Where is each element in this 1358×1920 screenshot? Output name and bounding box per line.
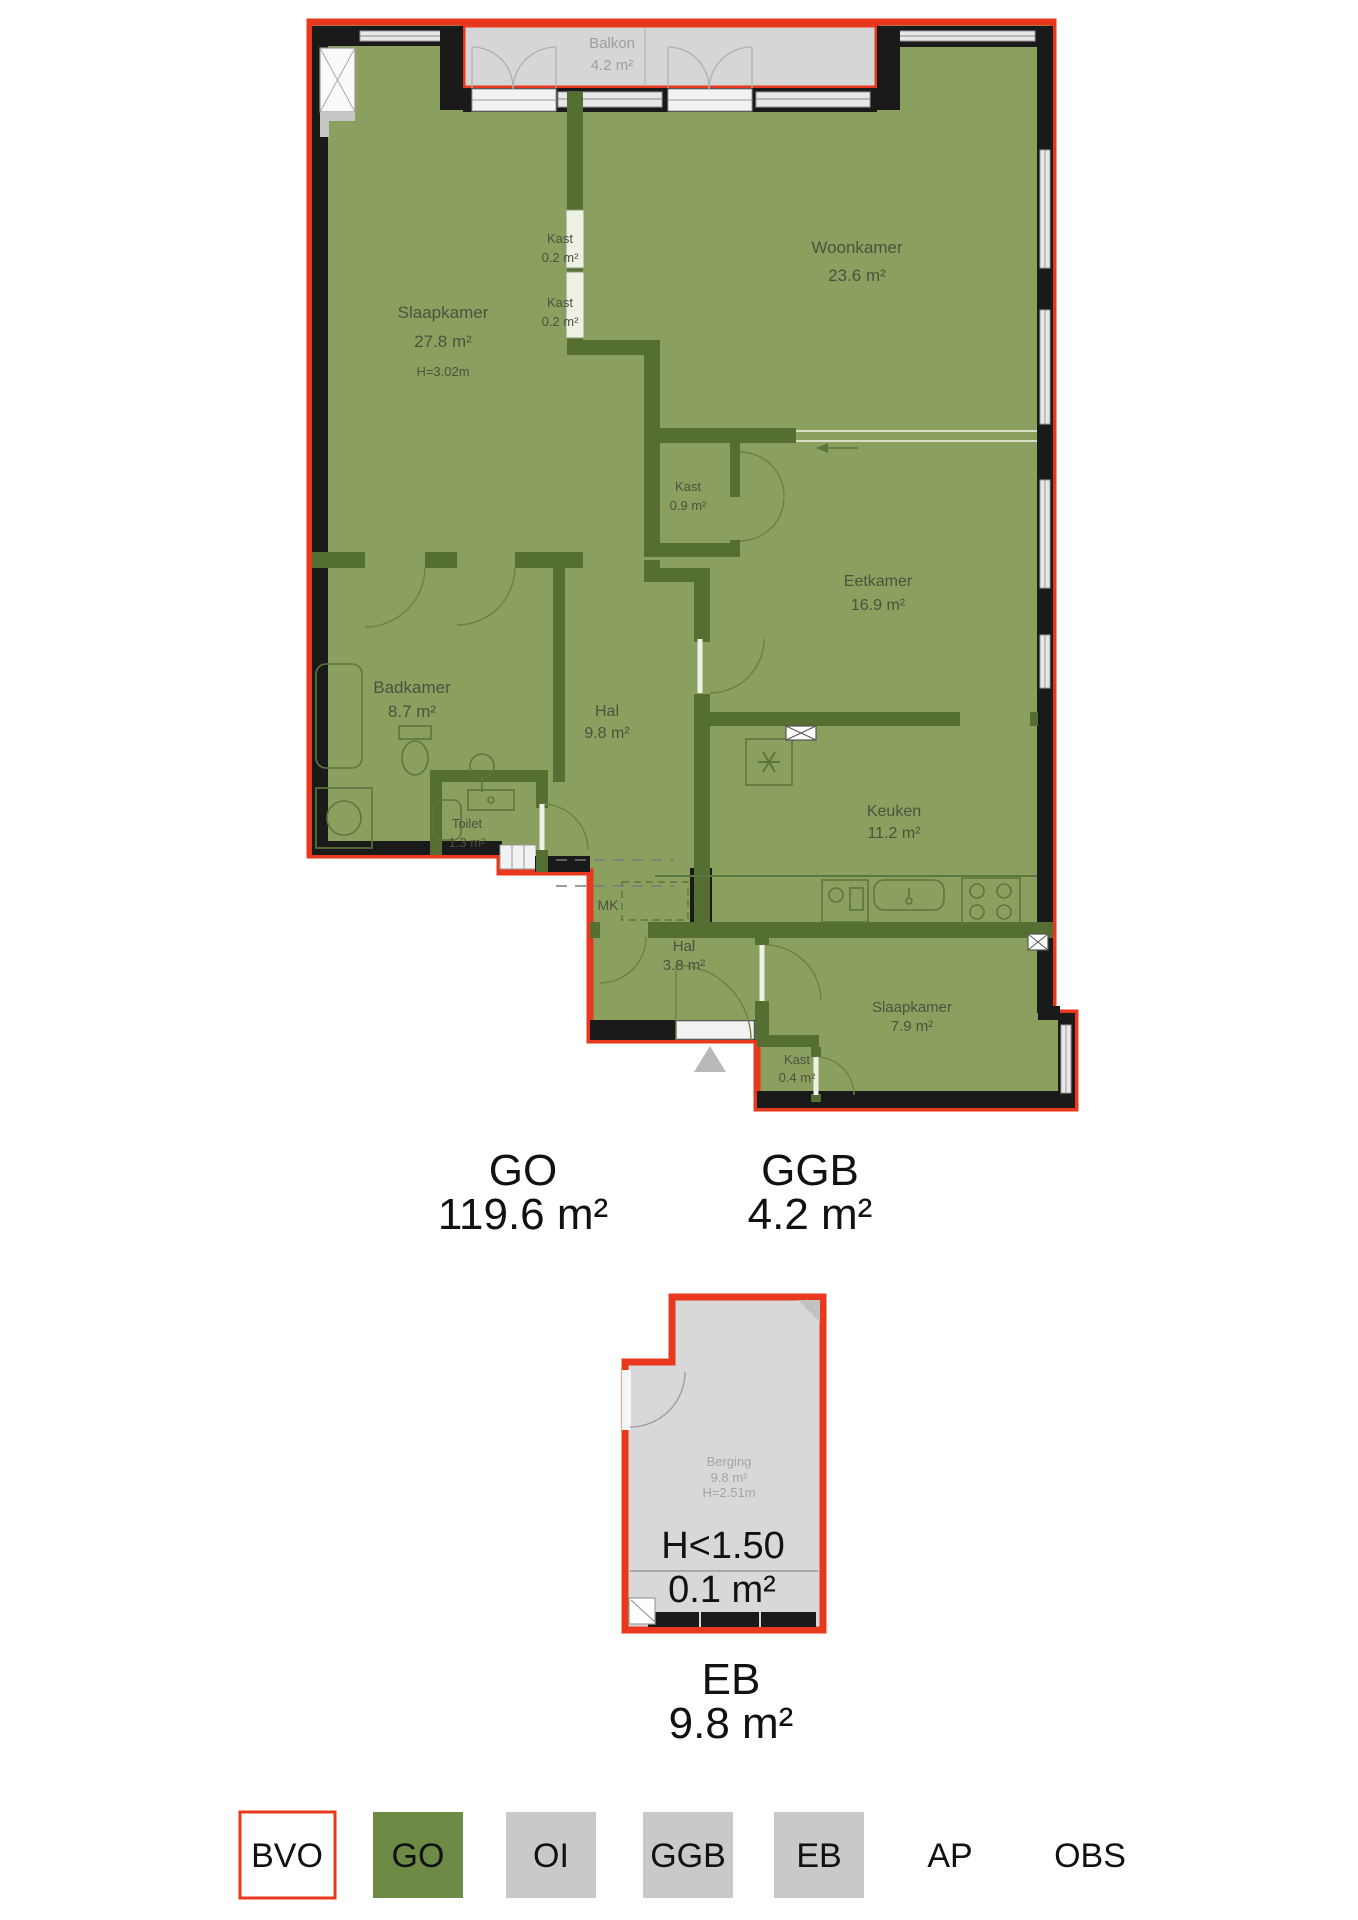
badkamer-label: Badkamer — [373, 678, 451, 697]
eb-summary-label: EB — [702, 1655, 761, 1704]
eb-low-height-label: H<1.50 — [661, 1525, 785, 1567]
kast-c-label: Kast — [675, 479, 701, 494]
eetkamer-area: 16.9 m² — [851, 597, 906, 614]
eb-summary-area: 9.8 m² — [669, 1699, 794, 1748]
vent-box2-icon — [1028, 934, 1048, 950]
kast-d-label: Kast — [784, 1052, 810, 1067]
woonkamer-area: 23.6 m² — [828, 266, 886, 285]
legend: BVO GO OI GGB EB AP OBS — [240, 1812, 1126, 1898]
kast-a-area: 0.2 m² — [542, 250, 580, 265]
eetkamer-label: Eetkamer — [844, 573, 913, 590]
slaapkamer1-height: H=3.02m — [416, 364, 469, 379]
legend-label-bvo: BVO — [251, 1837, 323, 1875]
legend-label-eb: EB — [796, 1837, 841, 1875]
main-unit-plan: Balkon 4.2 m² Slaapkamer 27.8 m² H=3.02m… — [310, 22, 1075, 1239]
hal1-label: Hal — [595, 703, 619, 720]
summary-labels: GO 119.6 m² GGB 4.2 m² — [438, 1146, 873, 1239]
balkon-label: Balkon — [589, 35, 635, 52]
eb-low-height-area: 0.1 m² — [668, 1569, 776, 1611]
legend-label-go: GO — [392, 1837, 445, 1875]
slaapkamer1-label: Slaapkamer — [398, 303, 489, 322]
balcony-area — [463, 25, 877, 88]
legend-label-oi: OI — [533, 1837, 569, 1875]
balcony-floor — [463, 25, 877, 88]
legend-label-obs: OBS — [1054, 1837, 1126, 1875]
kast-a-label: Kast — [547, 231, 573, 246]
kast-c-area: 0.9 m² — [670, 498, 708, 513]
slaapkamer1-area: 27.8 m² — [414, 332, 472, 351]
eb-bottom-wall — [648, 1612, 816, 1627]
kast-b-label: Kast — [547, 295, 573, 310]
kast-b-area: 0.2 m² — [542, 314, 580, 329]
toilet-area: 1.3 m² — [449, 835, 487, 850]
eb-corner-door — [629, 1598, 655, 1624]
slaapkamer2-label: Slaapkamer — [872, 999, 952, 1016]
hal2-label: Hal — [673, 938, 696, 955]
storage-unit-plan: Berging 9.8 m² H=2.51m H<1.50 0.1 m² EB … — [622, 1297, 823, 1748]
entrance-arrow-icon — [694, 1046, 726, 1072]
hal2-area: 3.8 m² — [663, 957, 706, 974]
hal1-area: 9.8 m² — [584, 725, 630, 742]
balkon-area: 4.2 m² — [591, 57, 634, 74]
floor-plan-svg: Balkon 4.2 m² Slaapkamer 27.8 m² H=3.02m… — [0, 0, 1358, 1920]
keuken-area: 11.2 m² — [867, 825, 921, 842]
berging-height: H=2.51m — [702, 1485, 755, 1500]
mk-label: MK — [598, 897, 620, 913]
toilet-label: Toilet — [452, 816, 483, 831]
vent-box-icon — [786, 726, 816, 740]
front-door — [676, 1021, 754, 1039]
go-summary-area: 119.6 m² — [438, 1190, 608, 1239]
ggb-summary-label: GGB — [761, 1146, 859, 1195]
berging-label: Berging — [707, 1454, 752, 1469]
floorplan-page: Balkon 4.2 m² Slaapkamer 27.8 m² H=3.02m… — [0, 0, 1358, 1920]
woonkamer-label: Woonkamer — [811, 238, 903, 257]
kast-d-area: 0.4 m² — [779, 1070, 817, 1085]
legend-label-ap: AP — [927, 1837, 972, 1875]
entry-window — [500, 845, 536, 869]
legend-label-ggb: GGB — [650, 1837, 726, 1875]
keuken-label: Keuken — [867, 803, 921, 820]
badkamer-area: 8.7 m² — [388, 702, 437, 721]
slaapkamer2-area: 7.9 m² — [891, 1018, 934, 1035]
eb-door-gap — [622, 1370, 631, 1430]
berging-area: 9.8 m² — [711, 1470, 749, 1485]
go-summary-label: GO — [489, 1146, 557, 1195]
ggb-summary-area: 4.2 m² — [748, 1190, 873, 1239]
